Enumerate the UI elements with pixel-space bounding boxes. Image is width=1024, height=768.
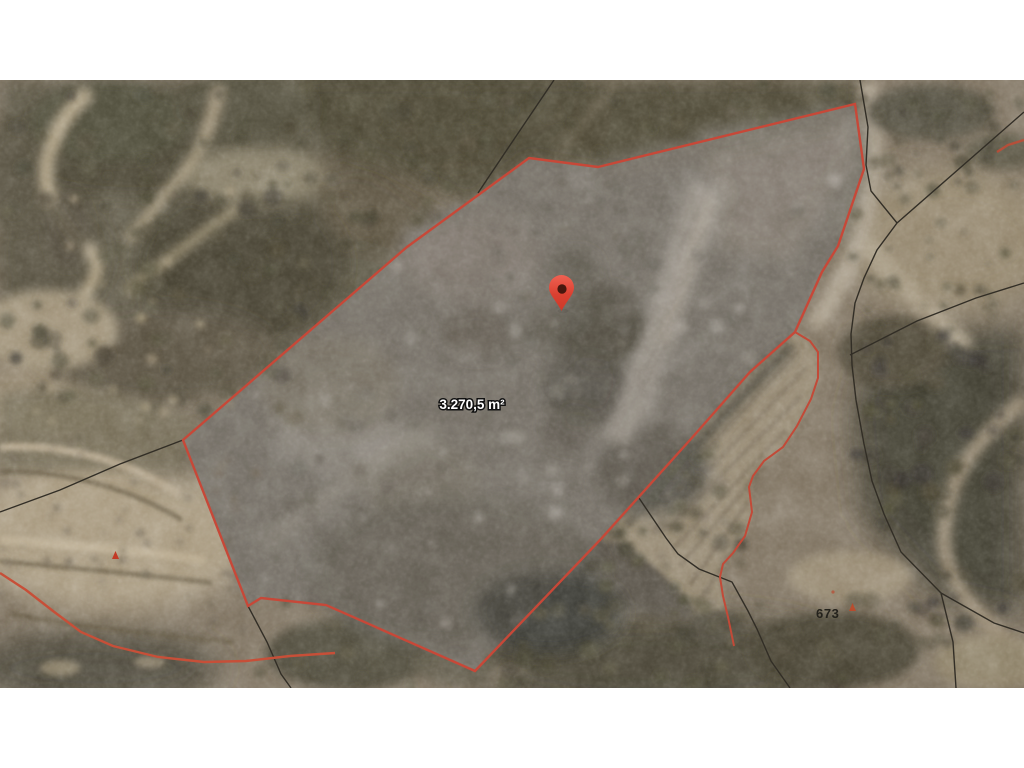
svg-text:3.270,5 m²: 3.270,5 m² xyxy=(439,397,505,412)
svg-text:673: 673 xyxy=(816,606,840,621)
